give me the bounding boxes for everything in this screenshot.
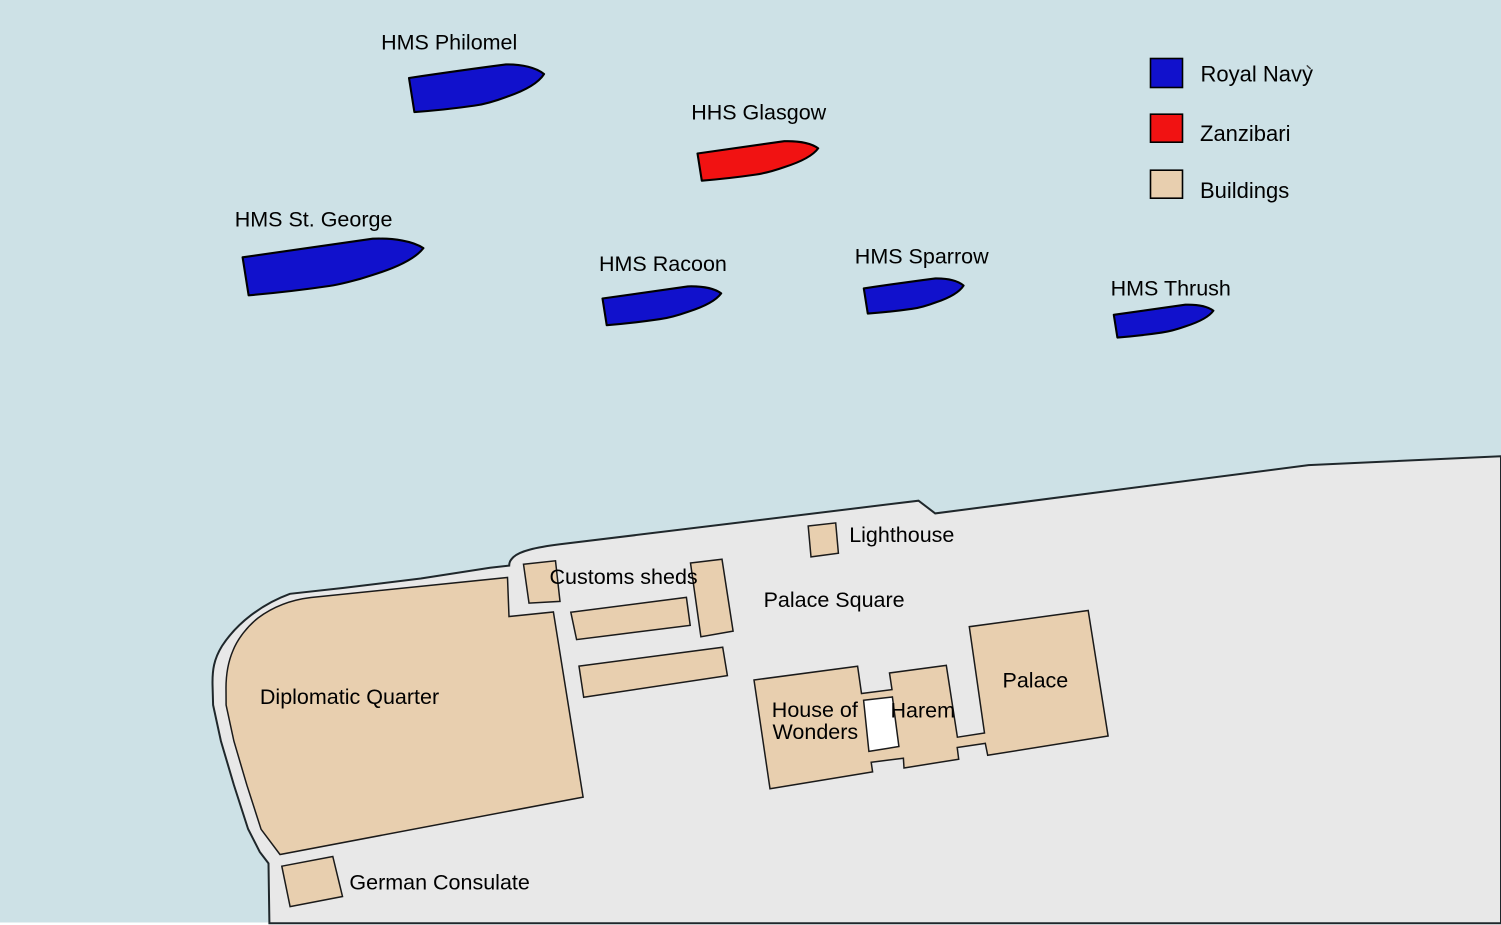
svg-text:House of: House of (772, 698, 858, 722)
svg-text:Lighthouse: Lighthouse (849, 523, 954, 547)
svg-text:Diplomatic Quarter: Diplomatic Quarter (260, 685, 439, 709)
svg-text:Royal Navy: Royal Navy (1201, 62, 1313, 87)
svg-text:Buildings: Buildings (1200, 178, 1289, 203)
svg-text:HMS Thrush: HMS Thrush (1111, 277, 1231, 301)
svg-text:German Consulate: German Consulate (349, 871, 529, 895)
svg-text:Palace: Palace (1003, 669, 1069, 693)
svg-text:HMS Philomel: HMS Philomel (381, 30, 517, 54)
svg-text:Zanzibari: Zanzibari (1200, 121, 1290, 146)
svg-text:HMS Racoon: HMS Racoon (599, 252, 727, 276)
svg-text:Customs sheds: Customs sheds (550, 565, 698, 589)
svg-text:Harem: Harem (891, 699, 956, 723)
svg-text:Wonders: Wonders (773, 720, 859, 744)
svg-text:HMS Sparrow: HMS Sparrow (855, 245, 989, 269)
svg-text:Palace Square: Palace Square (764, 588, 905, 612)
svg-text:HHS Glasgow: HHS Glasgow (691, 100, 826, 124)
svg-text:HMS St. George: HMS St. George (235, 208, 393, 232)
